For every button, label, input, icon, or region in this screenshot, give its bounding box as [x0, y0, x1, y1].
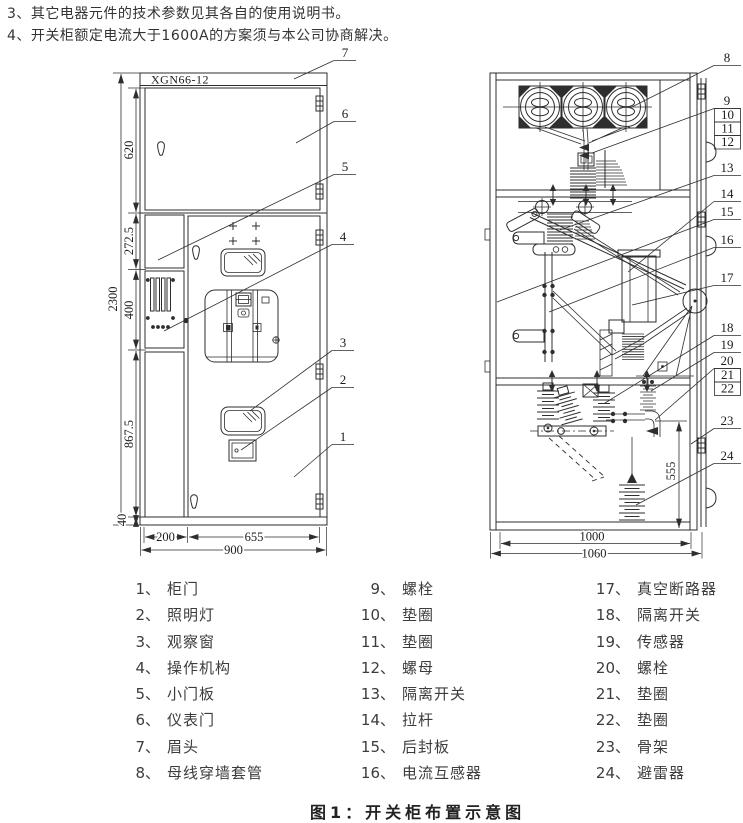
- legend-item: 21、垫圈: [588, 683, 717, 709]
- door-handle: [706, 236, 716, 256]
- legend-item: 1、柜门: [118, 578, 263, 604]
- lamp: [229, 440, 256, 461]
- door-handle: [706, 488, 716, 508]
- legend-item: 23、骨架: [588, 736, 717, 762]
- dim-900: 900: [224, 543, 243, 557]
- callout-24: 24: [636, 448, 741, 505]
- dim-1060: 1060: [582, 547, 607, 561]
- legend-item: 12、螺母: [353, 657, 482, 683]
- busbar-supports: [570, 150, 627, 198]
- callout-3: 3: [250, 335, 354, 411]
- svg-text:17: 17: [721, 270, 735, 285]
- side-view-drawing: 555 1000 1060 8 9 10: [485, 50, 741, 561]
- legend-column-3: 17、真空断路器 18、隔离开关 19、传感器 20、螺栓 21、垫圈 22、垫…: [588, 578, 717, 788]
- callout-12: 12: [715, 134, 741, 149]
- legend-item: 18、隔离开关: [588, 604, 717, 630]
- svg-text:7: 7: [342, 45, 349, 60]
- legend-item: 22、垫圈: [588, 709, 717, 735]
- current-transformer: [513, 232, 616, 362]
- cabinet-outline: [140, 73, 327, 525]
- svg-text:13: 13: [721, 160, 734, 175]
- svg-text:5: 5: [342, 159, 349, 174]
- svg-text:6: 6: [342, 106, 349, 121]
- legend-item: 17、真空断路器: [588, 578, 717, 604]
- small-door-panel: [145, 215, 184, 517]
- instrument-door: [145, 88, 323, 210]
- svg-text:22: 22: [721, 381, 734, 396]
- svg-text:1: 1: [340, 429, 347, 444]
- callout-4: 4: [164, 229, 354, 331]
- disconnect-switch-lower: [530, 383, 615, 481]
- observation-window-lower: [221, 407, 265, 435]
- dim-867-5: 867.5: [122, 420, 136, 448]
- legend-item: 3、观察窗: [118, 631, 263, 657]
- callout-23: 23: [691, 413, 741, 444]
- svg-text:9: 9: [724, 93, 731, 108]
- observation-window-upper: [221, 249, 265, 276]
- sensor: [640, 378, 656, 410]
- legend-item: 5、小门板: [118, 683, 263, 709]
- legend-item: 16、电流互感器: [353, 762, 482, 788]
- page: 3、其它电器元件的技术参数见其各自的使用说明书。 4、开关柜额定电流大于1600…: [0, 0, 743, 823]
- dim-overall-height: 2300: [106, 287, 120, 312]
- dim-40: 40: [115, 514, 129, 527]
- svg-text:12: 12: [721, 134, 734, 149]
- svg-text:16: 16: [721, 232, 735, 247]
- dim-272-5: 272.5: [122, 227, 136, 255]
- legend-item: 13、隔离开关: [353, 683, 482, 709]
- legend-item: 14、拉杆: [353, 709, 482, 735]
- callout-16: 16: [549, 232, 741, 312]
- pull-rod: [530, 213, 686, 296]
- operating-mechanism-panel: [205, 290, 280, 362]
- dim-555: 555: [664, 462, 678, 481]
- svg-text:2: 2: [340, 372, 347, 387]
- dim-200: 200: [156, 530, 175, 544]
- callout-1: 1: [294, 429, 354, 477]
- svg-text:20: 20: [721, 353, 734, 368]
- legend-item: 7、眉头: [118, 736, 263, 762]
- svg-text:4: 4: [340, 229, 347, 244]
- callout-7: 7: [294, 45, 356, 79]
- legend-column-1: 1、柜门 2、照明灯 3、观察窗 4、操作机构 5、小门板 6、仪表门 7、眉头…: [118, 578, 263, 788]
- legend-item: 15、后封板: [353, 736, 482, 762]
- svg-text:14: 14: [721, 186, 735, 201]
- busbar-cables: [536, 127, 630, 170]
- switchgear-drawings: XGN66-12: [0, 0, 743, 570]
- svg-text:23: 23: [721, 413, 734, 428]
- operating-travel-dashed: [549, 436, 606, 481]
- main-door: [183, 216, 323, 517]
- earth-conductor: [606, 411, 660, 481]
- side-cabinet-frame: [485, 73, 697, 530]
- dim-400: 400: [122, 301, 136, 320]
- legend-item: 10、垫圈: [353, 604, 482, 630]
- legend-column-2: 9、螺栓 10、垫圈 11、垫圈 12、螺母 13、隔离开关 14、拉杆 15、…: [353, 578, 482, 788]
- legend-item: 2、照明灯: [118, 604, 263, 630]
- wall-bushings: [503, 82, 652, 132]
- legend-item: 6、仪表门: [118, 709, 263, 735]
- svg-text:3: 3: [340, 335, 347, 350]
- side-view-callouts: 8 9 10 11 12: [497, 50, 741, 505]
- dim-1000: 1000: [580, 530, 605, 544]
- dim-655: 655: [245, 530, 264, 544]
- legend-item: 11、垫圈: [353, 631, 482, 657]
- legend-item: 20、螺栓: [588, 657, 717, 683]
- vent-grille: [146, 278, 175, 329]
- legend-item: 24、避雷器: [588, 762, 717, 788]
- legend-item: 4、操作机构: [118, 657, 263, 683]
- svg-text:19: 19: [721, 337, 734, 352]
- svg-text:24: 24: [721, 448, 735, 463]
- side-view-dimensions: 555 1000 1060: [491, 421, 703, 561]
- model-label: XGN66-12: [151, 73, 209, 87]
- front-view-dimensions: 2300 620 272.5 400 867.5 40 200 655 900: [106, 73, 327, 557]
- legend-item: 9、螺栓: [353, 578, 482, 604]
- callout-6: 6: [296, 106, 356, 143]
- figure-caption: 图1：开关柜布置示意图: [310, 799, 525, 823]
- arrester: [619, 473, 645, 520]
- legend-item: 8、母线穿墙套管: [118, 762, 263, 788]
- svg-text:8: 8: [724, 50, 731, 65]
- svg-text:18: 18: [721, 320, 734, 335]
- callout-22: 22: [715, 381, 741, 396]
- svg-text:15: 15: [721, 204, 734, 219]
- front-view-drawing: XGN66-12: [106, 45, 356, 557]
- legend-item: 19、传感器: [588, 631, 717, 657]
- dim-620: 620: [122, 141, 136, 160]
